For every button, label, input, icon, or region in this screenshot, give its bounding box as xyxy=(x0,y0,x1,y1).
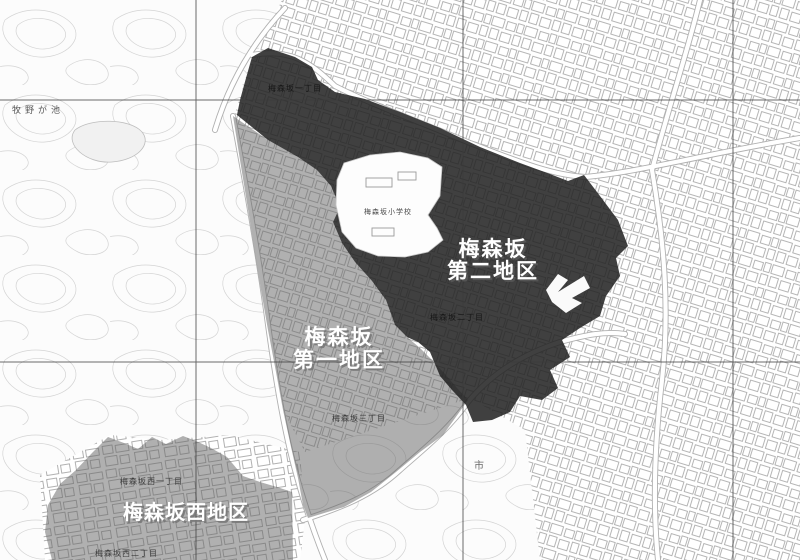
school-grounds-cutout xyxy=(336,152,443,257)
map-screenshot: 梅森坂一丁目 梅森坂二丁目 梅森坂三丁目 梅森坂西一丁目 梅森坂西二丁目 牧野が… xyxy=(0,0,800,560)
topographic-map-canvas xyxy=(0,0,800,560)
